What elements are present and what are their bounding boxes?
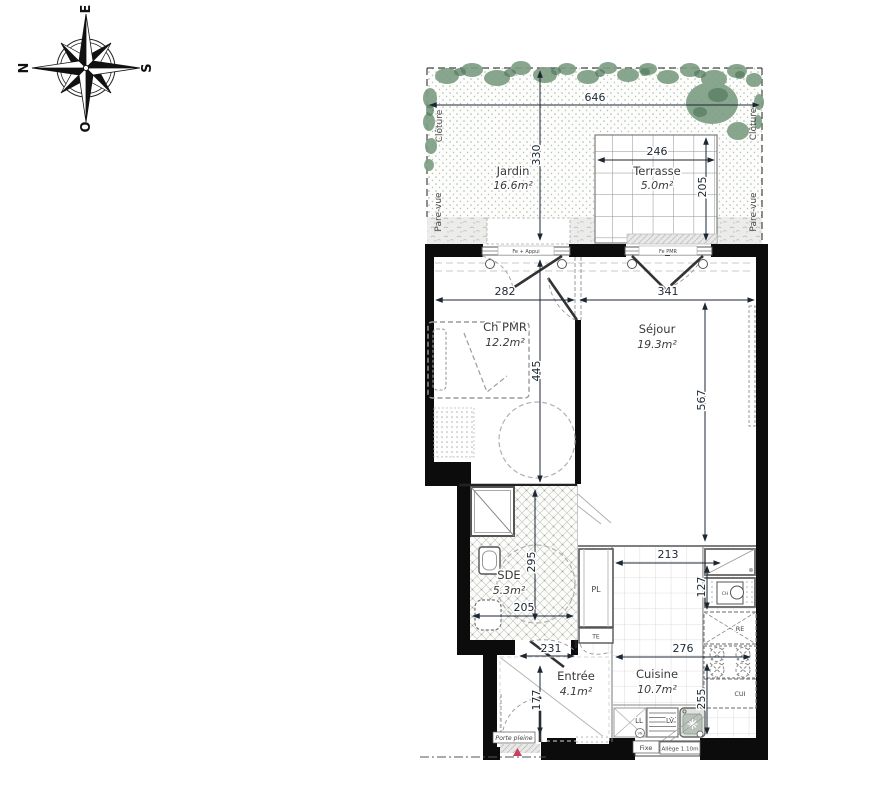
dim-living-width: 341	[658, 285, 679, 298]
cooking-cabinet: CUI	[704, 679, 756, 708]
dim-garden-depth: 330	[530, 145, 543, 166]
dim-terrace-depth: 205	[696, 177, 709, 198]
kitchen-window: Fixe Allège 1.10m	[633, 741, 700, 756]
kitchen-area: 10.7m²	[637, 683, 677, 696]
kitchen-name: Cuisine	[636, 667, 678, 681]
garden-name: Jardin	[496, 164, 530, 178]
dim-terrace-width: 246	[647, 145, 668, 158]
bedroom-area: 12.2m²	[485, 336, 525, 349]
bedroom-name: Ch PMR	[483, 320, 527, 334]
dim-garden-width: 646	[585, 91, 606, 104]
toilet-icon	[475, 600, 501, 630]
fridge-label: RE	[736, 625, 745, 633]
closet-zone: PL TE	[579, 549, 613, 654]
upper-cabinet	[705, 549, 755, 575]
sde-area: 5.3m²	[493, 584, 526, 597]
entry-area: 4.1m²	[560, 685, 593, 698]
living-name: Séjour	[639, 322, 676, 336]
dishwasher-label: LV	[666, 717, 674, 725]
vent-label: VN	[638, 732, 643, 736]
compass-south-label: S	[140, 63, 155, 72]
sill-label: Allège 1.10m	[661, 746, 698, 753]
kitchen-sink-icon	[680, 708, 705, 737]
living-area: 19.3m²	[637, 338, 677, 351]
water-heater-label: CH	[722, 591, 729, 597]
dim-bedroom-width: 282	[495, 285, 516, 298]
compass-east-label: E	[79, 5, 94, 14]
floor-plan-drawing: N E S O	[0, 0, 885, 800]
washer-label: LL	[635, 717, 643, 725]
window-path-slab	[487, 218, 570, 244]
entry-name: Entrée	[557, 669, 595, 683]
screen-label-right: Pare-vue	[749, 192, 759, 232]
dim-kitchen-depth: 255	[695, 689, 708, 710]
entry-door-label: Porte pleine	[495, 734, 532, 742]
fence-label-left: Clôture	[434, 109, 445, 142]
compass-west-label: O	[79, 121, 94, 132]
water-heater-icon: CH	[705, 578, 755, 607]
screen-label-left: Pare-vue	[434, 192, 444, 232]
sde-name: SDE	[497, 568, 520, 582]
fridge-icon	[704, 612, 756, 644]
compass-rose: N E S O	[17, 5, 155, 133]
dim-bedroom-depth: 445	[530, 361, 543, 382]
living-window-label: Fe PMR	[659, 249, 678, 255]
garden-area: 16.6m²	[493, 179, 533, 192]
dim-kitchen-width: 276	[673, 642, 694, 655]
bedroom-window-label: Fe + Appui	[512, 249, 539, 255]
terrace-name: Terrasse	[632, 164, 681, 178]
floor-plan-page: N E S O	[0, 0, 885, 800]
closet-label: PL	[591, 585, 601, 594]
terrace-area: 5.0m²	[641, 179, 674, 192]
entry-mat	[576, 736, 609, 744]
radiator	[749, 306, 755, 426]
bedroom-mat	[434, 408, 474, 457]
door-threshold	[500, 744, 540, 753]
elec-label: TE	[591, 634, 600, 641]
dim-entry-depth: 177	[530, 690, 543, 711]
fence-label-right: Clôture	[748, 107, 759, 140]
fixed-window-label: Fixe	[640, 744, 653, 752]
garden-zone: Jardin 16.6m² Terrasse 5.0m² Clôture Clô…	[423, 61, 764, 244]
dim-counter-width: 213	[658, 548, 679, 561]
dim-counter-depth: 127	[695, 577, 708, 598]
dim-sde-width: 205	[514, 601, 535, 614]
dim-sde-depth: 295	[525, 552, 538, 573]
dim-living-depth: 567	[695, 390, 708, 411]
compass-north-label: N	[17, 63, 32, 74]
cooktop-icon	[704, 646, 756, 678]
dim-sde-door: 231	[541, 642, 562, 655]
cooking-label: CUI	[734, 690, 745, 698]
shower-icon	[471, 487, 514, 536]
gravel-strip-mid	[570, 217, 595, 244]
